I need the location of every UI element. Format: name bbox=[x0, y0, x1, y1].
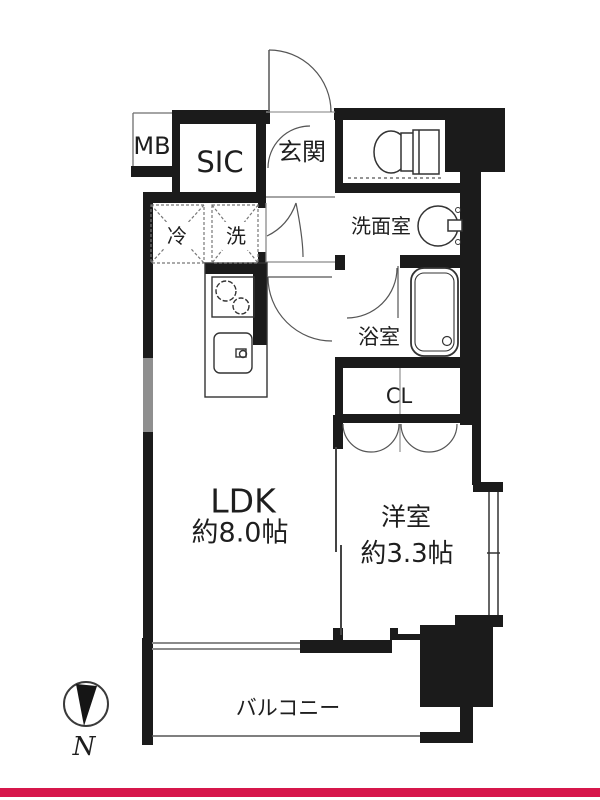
stove-icon bbox=[212, 277, 254, 317]
wall-segment bbox=[253, 263, 267, 345]
kitchen-sink-icon bbox=[214, 333, 252, 373]
bath-door-arc bbox=[347, 268, 397, 318]
wall-segment bbox=[335, 110, 343, 193]
basin-spout bbox=[448, 220, 462, 231]
sliding-door bbox=[336, 447, 341, 635]
wall-segment bbox=[335, 357, 481, 368]
wall-segment bbox=[142, 638, 153, 745]
ldk-balcony-window bbox=[152, 643, 300, 649]
wall-segment bbox=[172, 110, 180, 203]
stove-burner bbox=[233, 298, 249, 314]
wall-segment-gray bbox=[143, 358, 153, 432]
wall-segment bbox=[343, 640, 392, 653]
wall-segment bbox=[131, 166, 172, 177]
wall-segment bbox=[420, 732, 473, 743]
wall-segment bbox=[333, 415, 343, 449]
room-label-shoe-closet: SIC bbox=[196, 145, 243, 179]
wall-segment bbox=[472, 425, 481, 485]
wall-segment bbox=[473, 482, 503, 492]
basin-knob bbox=[456, 240, 461, 245]
room-label-bathroom: 浴室 bbox=[358, 325, 400, 349]
room-label-closet: CL bbox=[386, 384, 413, 408]
wall-segment bbox=[420, 625, 493, 707]
room-labels: MB SIC 玄関 洗面室 冷 洗 浴室 CL LDK 約8.0帖 洋室 約3.… bbox=[133, 132, 453, 720]
entrance-door-arc bbox=[269, 50, 331, 112]
room-label-refrigerator: 冷 bbox=[167, 224, 187, 248]
bottom-accent-bar bbox=[0, 788, 600, 797]
room-label-ldk: LDK bbox=[210, 482, 277, 521]
washroom-door-arc bbox=[267, 203, 303, 257]
compass-north-label: N bbox=[72, 732, 97, 762]
closet-door-arc-left bbox=[343, 424, 399, 452]
floorplan-svg: N MB SIC 玄関 洗面室 冷 洗 浴室 CL LDK 約8.0帖 洋室 約… bbox=[0, 0, 600, 800]
room-size-ldk: 約8.0帖 bbox=[192, 518, 289, 549]
bedroom-right-window bbox=[487, 492, 500, 615]
room-label-washer: 洗 bbox=[226, 224, 246, 248]
room-label-balcony: バルコニー bbox=[236, 696, 341, 720]
wall-segment bbox=[256, 110, 266, 203]
ldk-door-arc bbox=[268, 277, 332, 341]
stove-burner bbox=[216, 281, 236, 301]
wall-segment bbox=[143, 192, 266, 203]
wall-segment bbox=[335, 183, 481, 193]
toilet-icon bbox=[374, 130, 439, 174]
wall-segment bbox=[335, 255, 345, 270]
toilet-tank bbox=[413, 130, 439, 174]
wall-segment bbox=[390, 628, 398, 640]
wall-segment bbox=[340, 414, 462, 423]
room-label-washroom: 洗面室 bbox=[351, 214, 411, 238]
compass-icon: N bbox=[64, 682, 108, 762]
room-label-meter-box: MB bbox=[133, 132, 170, 160]
floorplan-canvas: N MB SIC 玄関 洗面室 冷 洗 浴室 CL LDK 約8.0帖 洋室 約… bbox=[0, 0, 600, 800]
wall-segment bbox=[258, 192, 266, 208]
wash-basin-icon bbox=[418, 206, 462, 246]
room-size-western-room: 約3.3帖 bbox=[360, 539, 453, 569]
bathtub-drain bbox=[443, 337, 452, 346]
wall-segment bbox=[334, 108, 445, 120]
bathtub-icon bbox=[411, 268, 458, 356]
wall-segment bbox=[172, 110, 270, 124]
room-label-entrance: 玄関 bbox=[278, 138, 326, 166]
basin-knob bbox=[456, 208, 461, 213]
wall-segment bbox=[400, 255, 481, 268]
closet-door-arc-right bbox=[401, 424, 457, 452]
room-label-western-room: 洋室 bbox=[381, 503, 431, 532]
wall-segment bbox=[445, 108, 505, 172]
